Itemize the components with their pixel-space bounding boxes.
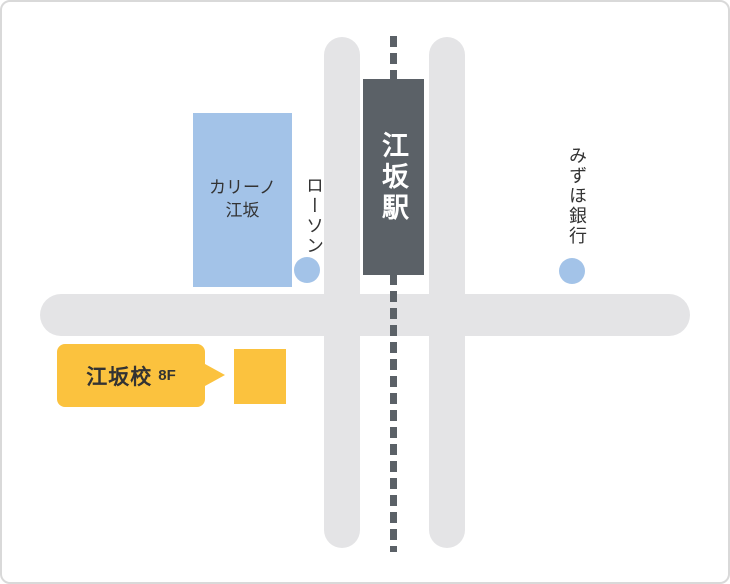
horizontal-road xyxy=(40,294,690,336)
esaka-school-building xyxy=(234,349,286,404)
esaka-school-floor: 8F xyxy=(158,367,176,384)
lawson-marker-dot xyxy=(294,257,320,283)
callout-arrow-icon xyxy=(205,364,225,386)
esaka-station-label: 江坂駅 xyxy=(374,131,413,224)
esaka-school-callout: 江坂校 8F xyxy=(57,344,205,407)
carino-esaka-building: カリーノ 江坂 xyxy=(193,113,292,287)
carino-esaka-label: カリーノ 江坂 xyxy=(209,177,276,223)
esaka-school-name: 江坂校 xyxy=(86,361,152,391)
mizuho-bank-marker-dot xyxy=(559,258,585,284)
vertical-road-right xyxy=(429,37,465,548)
lawson-label: ローソン xyxy=(301,176,327,256)
esaka-area-map: 江坂駅 カリーノ 江坂 ローソン みずほ銀行 江坂校 8F xyxy=(0,0,730,584)
vertical-road-left xyxy=(324,37,360,548)
mizuho-bank-label: みずほ銀行 xyxy=(564,146,590,246)
esaka-station-building: 江坂駅 xyxy=(363,79,424,275)
